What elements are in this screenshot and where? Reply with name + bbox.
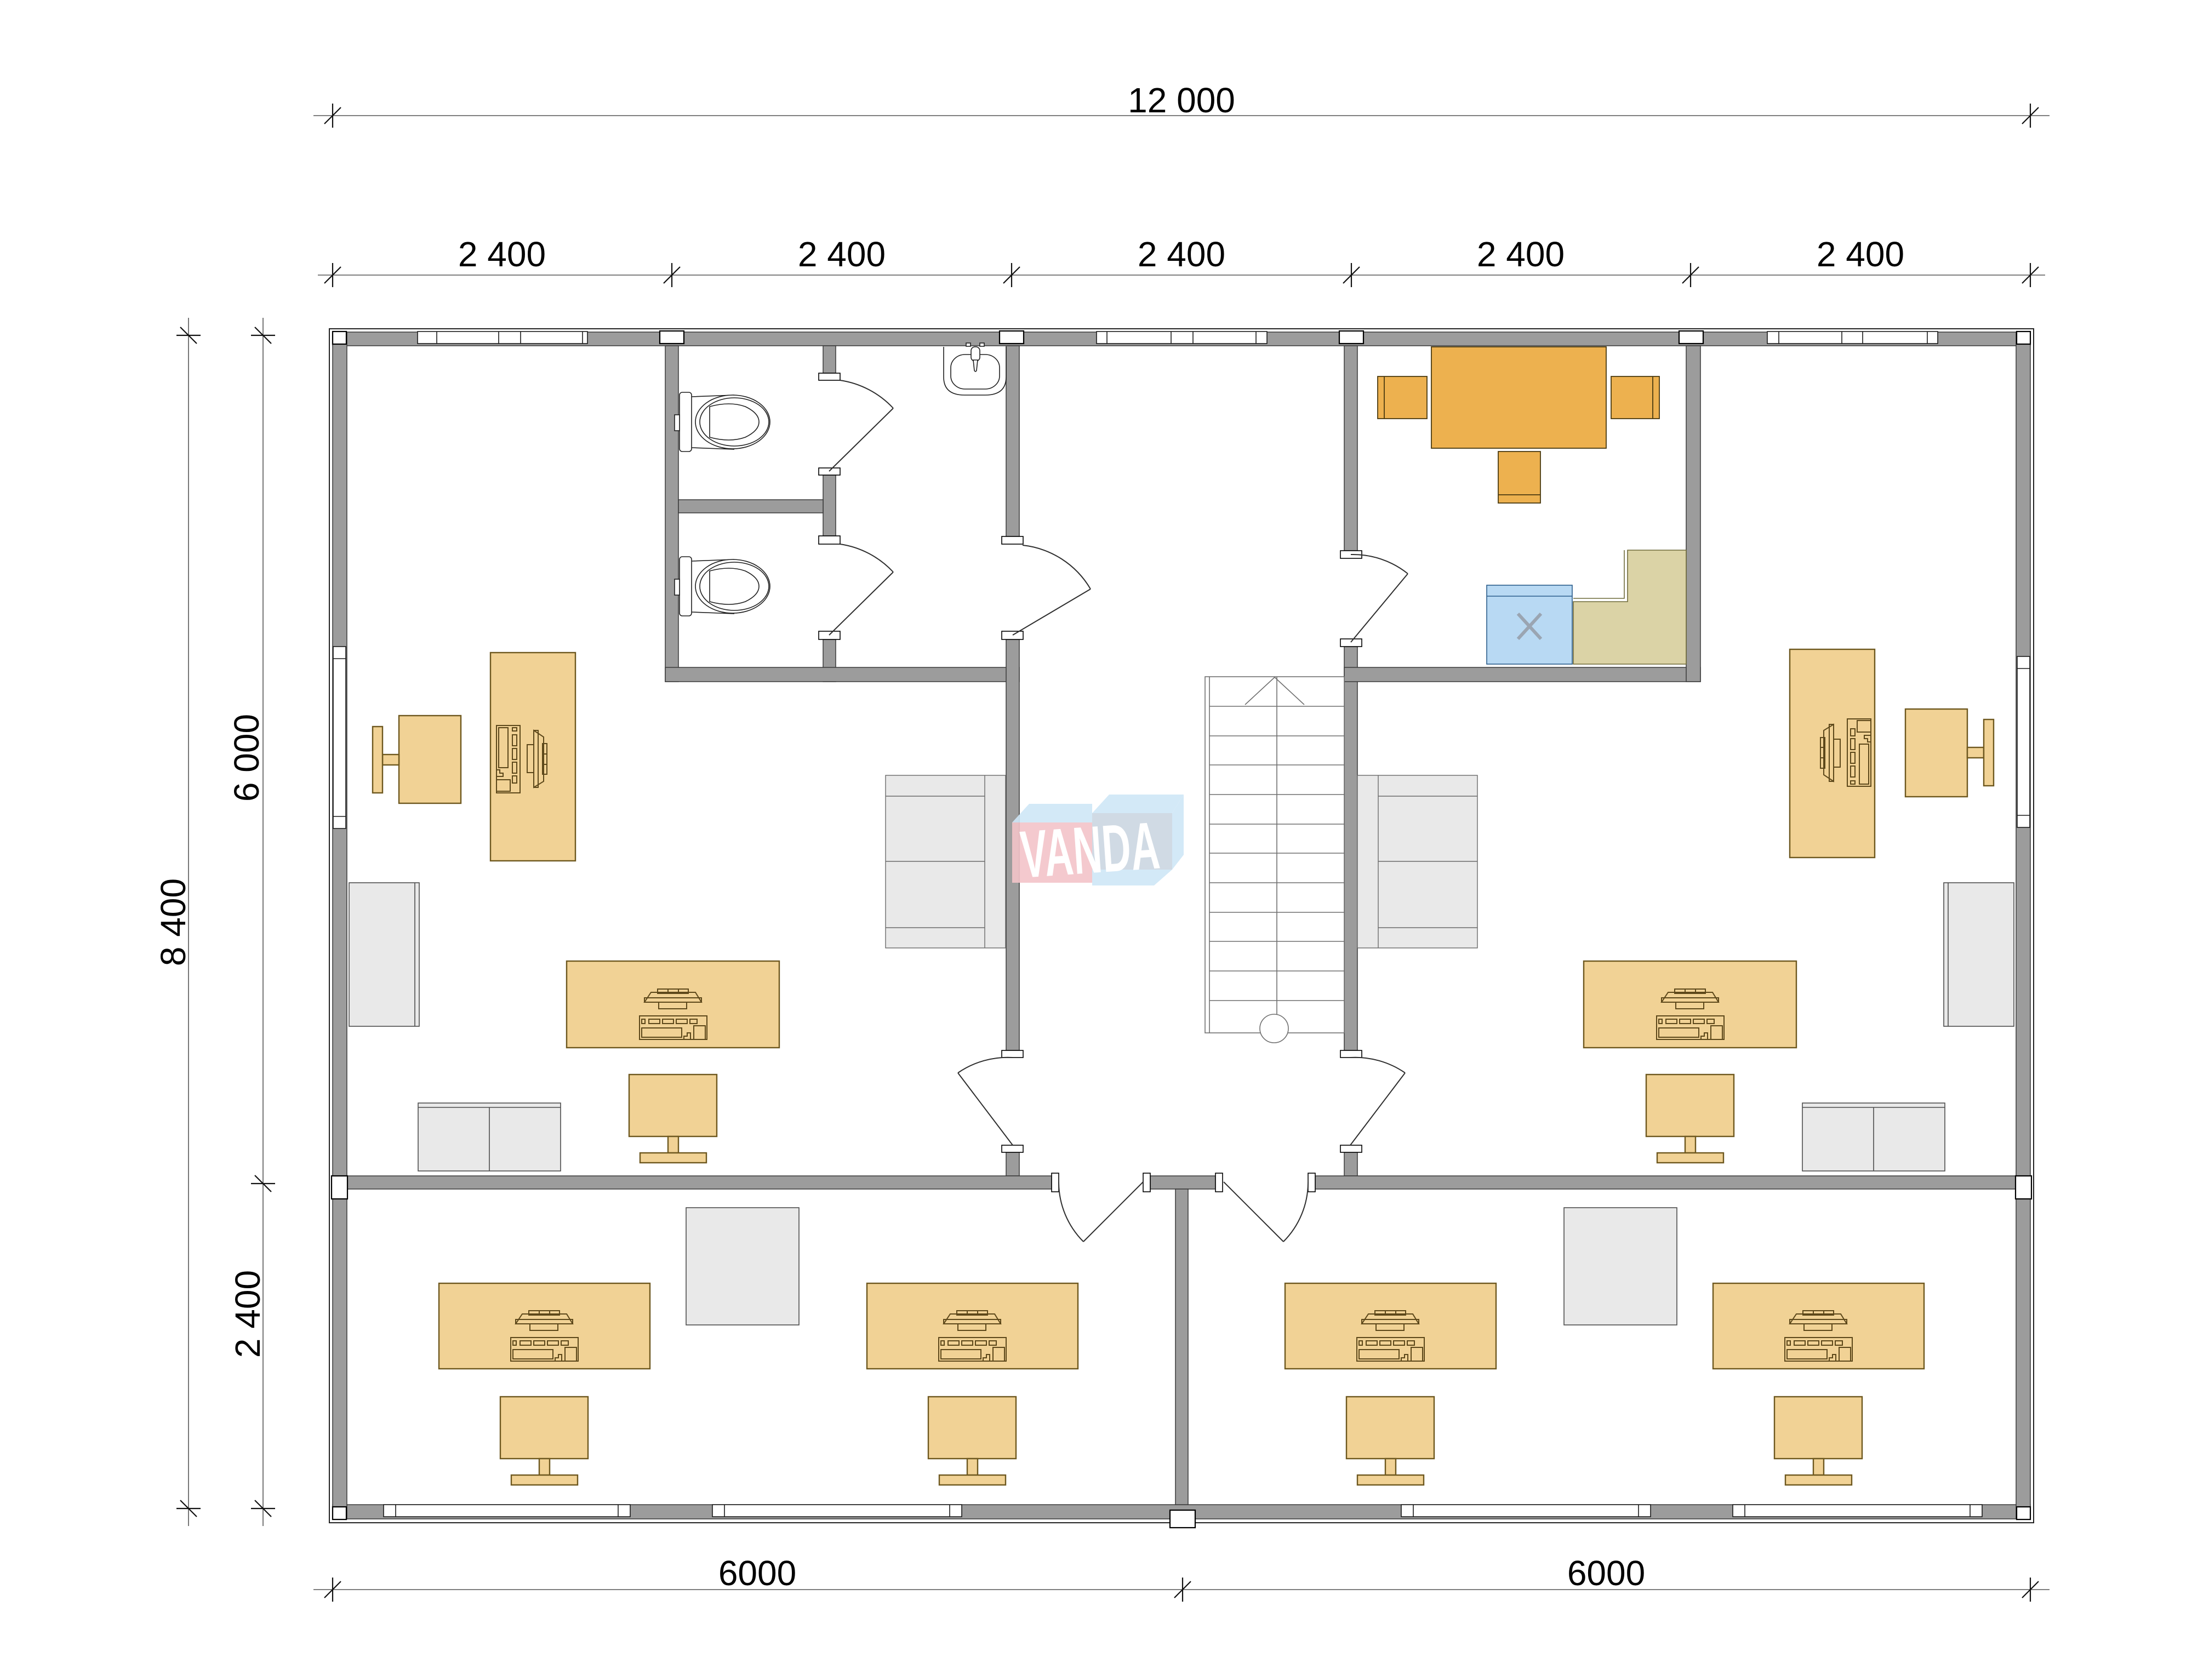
svg-text:6 000: 6 000 xyxy=(227,714,266,802)
svg-text:2 400: 2 400 xyxy=(228,1270,267,1358)
svg-text:2 400: 2 400 xyxy=(798,235,886,274)
svg-text:VANDA: VANDA xyxy=(1018,808,1162,892)
svg-text:6000: 6000 xyxy=(1567,1553,1645,1593)
svg-text:8 400: 8 400 xyxy=(153,878,193,966)
svg-text:2 400: 2 400 xyxy=(458,235,546,274)
svg-text:2 400: 2 400 xyxy=(1138,235,1225,274)
svg-text:2 400: 2 400 xyxy=(1817,235,1904,274)
svg-text:2 400: 2 400 xyxy=(1477,235,1565,274)
svg-text:6000: 6000 xyxy=(718,1553,796,1593)
svg-text:12 000: 12 000 xyxy=(1128,81,1235,120)
